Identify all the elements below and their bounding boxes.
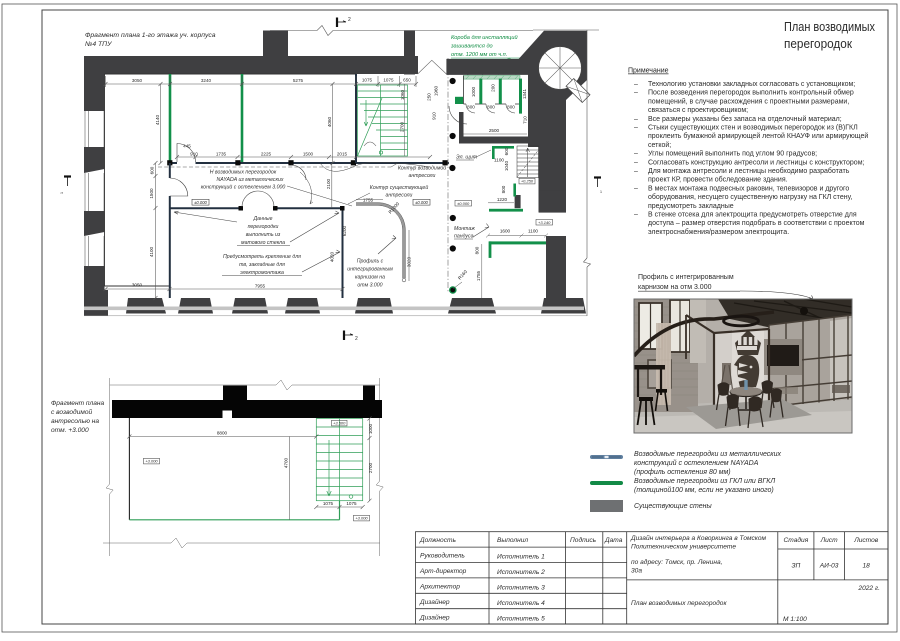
svg-text:Архитектор: Архитектор <box>419 584 460 591</box>
svg-text:АИ-03: АИ-03 <box>819 563 839 570</box>
svg-text:Углы помещений выполнить под у: Углы помещений выполнить под углом 90 гр… <box>648 150 817 158</box>
svg-text:Арт-директор: Арт-директор <box>419 567 467 575</box>
svg-text:перегородок: перегородок <box>784 36 852 51</box>
svg-text:Профиль с: Профиль с <box>357 259 384 265</box>
svg-text:№4 ТПУ: №4 ТПУ <box>85 41 112 48</box>
svg-text:–: – <box>634 81 638 88</box>
svg-text:электроснабжения/размером элек: электроснабжения/размером электрощита. <box>648 228 789 236</box>
svg-text:1060: 1060 <box>400 89 405 100</box>
svg-text:Должность: Должность <box>419 537 457 544</box>
svg-text:В местах монтажа подвесных рак: В местах монтажа подвесных раковин, теле… <box>648 185 849 192</box>
svg-text:связаться с проектировщиком;: связаться с проектировщиком; <box>648 107 748 114</box>
svg-text:оборудования, несущего существ: оборудования, несущего существенную нагр… <box>648 193 852 201</box>
svg-text:Фрагмент плана: Фрагмент плана <box>51 400 105 407</box>
svg-text:7955: 7955 <box>255 284 266 289</box>
svg-text:Выполнил: Выполнил <box>497 537 528 544</box>
svg-text:2: 2 <box>348 17 351 23</box>
svg-text:+3.140: +3.140 <box>538 220 551 225</box>
svg-text:2225: 2225 <box>261 152 272 157</box>
svg-text:1075: 1075 <box>383 78 394 83</box>
svg-text:Технологию установки закладных: Технологию установки закладных согласова… <box>648 81 855 88</box>
svg-text:Дизайн интерьера а Коворкинга: Дизайн интерьера а Коворкинга в Томском <box>630 534 767 542</box>
svg-text:доступа – размер отверстия под: доступа – размер отверстия подобрать в с… <box>648 219 865 227</box>
svg-text:2015: 2015 <box>337 152 348 157</box>
svg-text:Руководитель: Руководитель <box>420 552 465 560</box>
svg-text:помещений, в случае расхождени: помещений, в случае расхождения с проект… <box>648 97 849 105</box>
svg-text:800: 800 <box>507 105 515 110</box>
svg-text:1500: 1500 <box>303 152 314 157</box>
svg-text:проект КР, провести обследован: проект КР, провести обследование здания. <box>648 176 788 184</box>
svg-text:Дизайнер: Дизайнер <box>419 598 450 606</box>
svg-text:После возведения перегородок в: После возведения перегородок выполнить к… <box>648 89 854 97</box>
svg-text:±0.000: ±0.000 <box>194 200 207 205</box>
svg-text:250: 250 <box>427 93 432 101</box>
svg-text:650: 650 <box>403 78 411 83</box>
svg-text:Эл. щит: Эл. щит <box>456 155 478 161</box>
svg-text:1960: 1960 <box>434 85 439 96</box>
svg-text:Возводимые перегородки из ГКЛ: Возводимые перегородки из ГКЛ или ВГКЛ <box>634 477 775 485</box>
svg-text:Контур возводимой: Контур возводимой <box>398 165 446 172</box>
svg-text:4020: 4020 <box>330 251 335 262</box>
svg-text:1100: 1100 <box>528 229 538 234</box>
svg-text:антресоли: антресоли <box>409 173 436 179</box>
svg-text:600: 600 <box>150 166 155 174</box>
svg-text:1220: 1220 <box>497 197 508 202</box>
svg-text:Исполнитель 5: Исполнитель 5 <box>497 616 545 623</box>
svg-text:3050: 3050 <box>132 78 143 83</box>
svg-text:2022 г.: 2022 г. <box>857 585 880 592</box>
svg-text:6200: 6200 <box>342 225 347 236</box>
svg-text:перегородки: перегородки <box>248 224 279 230</box>
svg-text:910: 910 <box>432 112 437 120</box>
svg-text:конструкций с остеклением 3.00: конструкций с остеклением 3.000 <box>201 184 286 191</box>
svg-text:1: 1 <box>600 190 602 194</box>
svg-text:План возводимых перегородок: План возводимых перегородок <box>631 599 727 607</box>
svg-text:электромонтажа: электромонтажа <box>240 270 284 276</box>
svg-text:1: 1 <box>60 192 64 194</box>
svg-text:Стыки существующих стен и возв: Стыки существующих стен и возводимых пер… <box>648 125 858 132</box>
svg-text:предусмотреть закладные: предусмотреть закладные <box>648 203 734 210</box>
svg-text:проклеить бумажной армирующей: проклеить бумажной армирующей лентой КНА… <box>648 132 868 140</box>
svg-text:Данные: Данные <box>253 216 273 222</box>
svg-text:800: 800 <box>501 185 506 193</box>
svg-text:3240: 3240 <box>201 78 212 83</box>
svg-text:NAYADA из металлических: NAYADA из металлических <box>217 177 284 183</box>
svg-text:В стенке отсека для электрощит: В стенке отсека для электрощита предусмо… <box>648 212 857 219</box>
svg-text:карнизом на: карнизом на <box>355 275 385 281</box>
svg-text:Дизайнер: Дизайнер <box>419 614 450 622</box>
svg-text:Исполнитель 4: Исполнитель 4 <box>497 600 545 607</box>
svg-text:3050: 3050 <box>132 283 143 288</box>
svg-text:пандуса: пандуса <box>454 234 474 240</box>
svg-text:М 1:100: М 1:100 <box>783 616 807 623</box>
svg-text:4060: 4060 <box>327 116 332 127</box>
svg-text:антресолью на: антресолью на <box>51 418 99 425</box>
svg-text:–: – <box>634 90 638 97</box>
svg-text:Для монтажа антресоли и лестни: Для монтажа антресоли и лестницы необход… <box>648 167 850 175</box>
svg-text:±0.000: ±0.000 <box>457 201 470 206</box>
svg-text:Фрагмент плана 1-го этажа уч.: Фрагмент плана 1-го этажа уч. корпуса <box>85 32 216 39</box>
svg-text:Существующие стены: Существующие стены <box>634 503 713 510</box>
svg-text:Контур существующей: Контур существующей <box>370 184 429 191</box>
svg-text:2700: 2700 <box>368 462 373 473</box>
svg-text:710: 710 <box>523 116 528 124</box>
svg-text:(толщиной100 мм, если не указа: (толщиной100 мм, если не указано иного) <box>634 486 774 494</box>
svg-text:1075: 1075 <box>362 78 373 83</box>
svg-text:Исполнитель 2: Исполнитель 2 <box>497 569 545 576</box>
svg-text:Подпись: Подпись <box>570 536 597 544</box>
svg-text:2: 2 <box>355 336 358 342</box>
svg-text:800: 800 <box>467 105 475 110</box>
svg-text:445: 445 <box>183 144 191 149</box>
svg-text:+3.000: +3.000 <box>145 459 158 464</box>
svg-text:–: – <box>634 125 638 132</box>
svg-text:карнизом на отм 3.000: карнизом на отм 3.000 <box>638 284 712 291</box>
svg-text:Профиль с интегрированным: Профиль с интегрированным <box>638 274 734 281</box>
svg-text:Политехническом университете: Политехническом университете <box>631 544 736 551</box>
svg-text:Дата: Дата <box>604 537 623 544</box>
svg-text:Н возводимых перегородок: Н возводимых перегородок <box>210 170 277 176</box>
svg-text:Все размеры указаны без запаса: Все размеры указаны без запаса на отдело… <box>648 115 842 123</box>
svg-text:зашиваются до: зашиваются до <box>450 44 493 50</box>
svg-text:выполнить из: выполнить из <box>246 232 281 238</box>
svg-text:Лист: Лист <box>820 537 838 544</box>
svg-text:+0.250: +0.250 <box>521 179 534 184</box>
svg-text:Короба для инсталляций: Короба для инсталляций <box>451 34 518 41</box>
svg-text:4140: 4140 <box>155 114 160 125</box>
svg-text:1755: 1755 <box>476 270 481 281</box>
svg-text:1755: 1755 <box>363 198 374 203</box>
svg-text:отм. +3.000: отм. +3.000 <box>51 427 89 434</box>
svg-text:Согласовать конструкцию антрес: Согласовать конструкцию антресоли и лест… <box>648 159 865 166</box>
svg-text:±0.000: ±0.000 <box>415 200 428 205</box>
svg-text:отм. 1200 мм от ч.п.: отм. 1200 мм от ч.п. <box>451 52 507 58</box>
svg-text:Возводимые перегородки из мета: Возводимые перегородки из металлических <box>634 450 781 458</box>
svg-text:800: 800 <box>475 246 480 254</box>
svg-text:Исполнитель 3: Исполнитель 3 <box>497 585 545 592</box>
svg-text:2500: 2500 <box>489 128 500 133</box>
svg-text:тв, закладные для: тв, закладные для <box>239 262 285 268</box>
svg-text:–: – <box>634 116 638 123</box>
svg-text:антресоли: антресоли <box>386 193 413 199</box>
svg-text:200: 200 <box>491 84 496 92</box>
svg-text:отм 3.000: отм 3.000 <box>357 283 382 289</box>
svg-text:–: – <box>634 185 638 192</box>
svg-text:ЗП: ЗП <box>791 563 800 570</box>
svg-text:по адресу: Томск, пр. Ленина,: по адресу: Томск, пр. Ленина, <box>631 558 723 566</box>
svg-text:Примечание: Примечание <box>628 68 669 75</box>
svg-text:600: 600 <box>504 147 509 155</box>
svg-text:конструкций с остеклением NAYA: конструкций с остеклением NAYADA <box>634 459 759 467</box>
svg-text:сеткой;: сеткой; <box>648 141 671 149</box>
svg-text:с возводимой: с возводимой <box>51 408 93 416</box>
svg-text:1075: 1075 <box>323 501 334 506</box>
svg-text:Предусмотреть крепление для: Предусмотреть крепление для <box>223 254 301 260</box>
svg-text:30а: 30а <box>631 568 642 575</box>
svg-text:800: 800 <box>487 105 495 110</box>
svg-text:Монтаж: Монтаж <box>454 226 475 232</box>
svg-text:Листов: Листов <box>853 537 879 544</box>
svg-text:(профиль остекления 80 мм): (профиль остекления 80 мм) <box>634 469 731 476</box>
svg-text:План возводимых: План возводимых <box>784 19 875 34</box>
svg-text:1075: 1075 <box>346 501 357 506</box>
svg-text:1341: 1341 <box>522 88 527 99</box>
svg-text:–: – <box>634 168 638 175</box>
svg-text:–: – <box>634 159 638 166</box>
svg-text:Исполнитель 1: Исполнитель 1 <box>497 554 545 561</box>
svg-text:1735: 1735 <box>216 152 227 157</box>
svg-text:910: 910 <box>190 152 198 157</box>
svg-text:1000: 1000 <box>471 86 476 97</box>
svg-text:5275: 5275 <box>293 78 304 83</box>
svg-text:1600: 1600 <box>500 229 511 234</box>
svg-text:18: 18 <box>863 563 871 570</box>
svg-text:1000: 1000 <box>368 423 373 434</box>
svg-text:матового стекла: матового стекла <box>241 240 285 246</box>
svg-text:+3.000: +3.000 <box>355 516 368 521</box>
svg-text:2700: 2700 <box>400 121 405 132</box>
svg-text:2100: 2100 <box>326 178 331 189</box>
svg-text:+3.500: +3.500 <box>333 421 346 426</box>
svg-text:4100: 4100 <box>149 246 154 257</box>
svg-text:Стадия: Стадия <box>784 536 809 544</box>
svg-text:–: – <box>634 151 638 158</box>
svg-text:1040: 1040 <box>504 160 509 171</box>
svg-text:8800: 8800 <box>217 431 228 436</box>
svg-text:4700: 4700 <box>283 457 288 468</box>
svg-text:интегрированным: интегрированным <box>347 267 393 273</box>
svg-text:–: – <box>634 212 638 219</box>
svg-text:1500: 1500 <box>149 188 154 199</box>
